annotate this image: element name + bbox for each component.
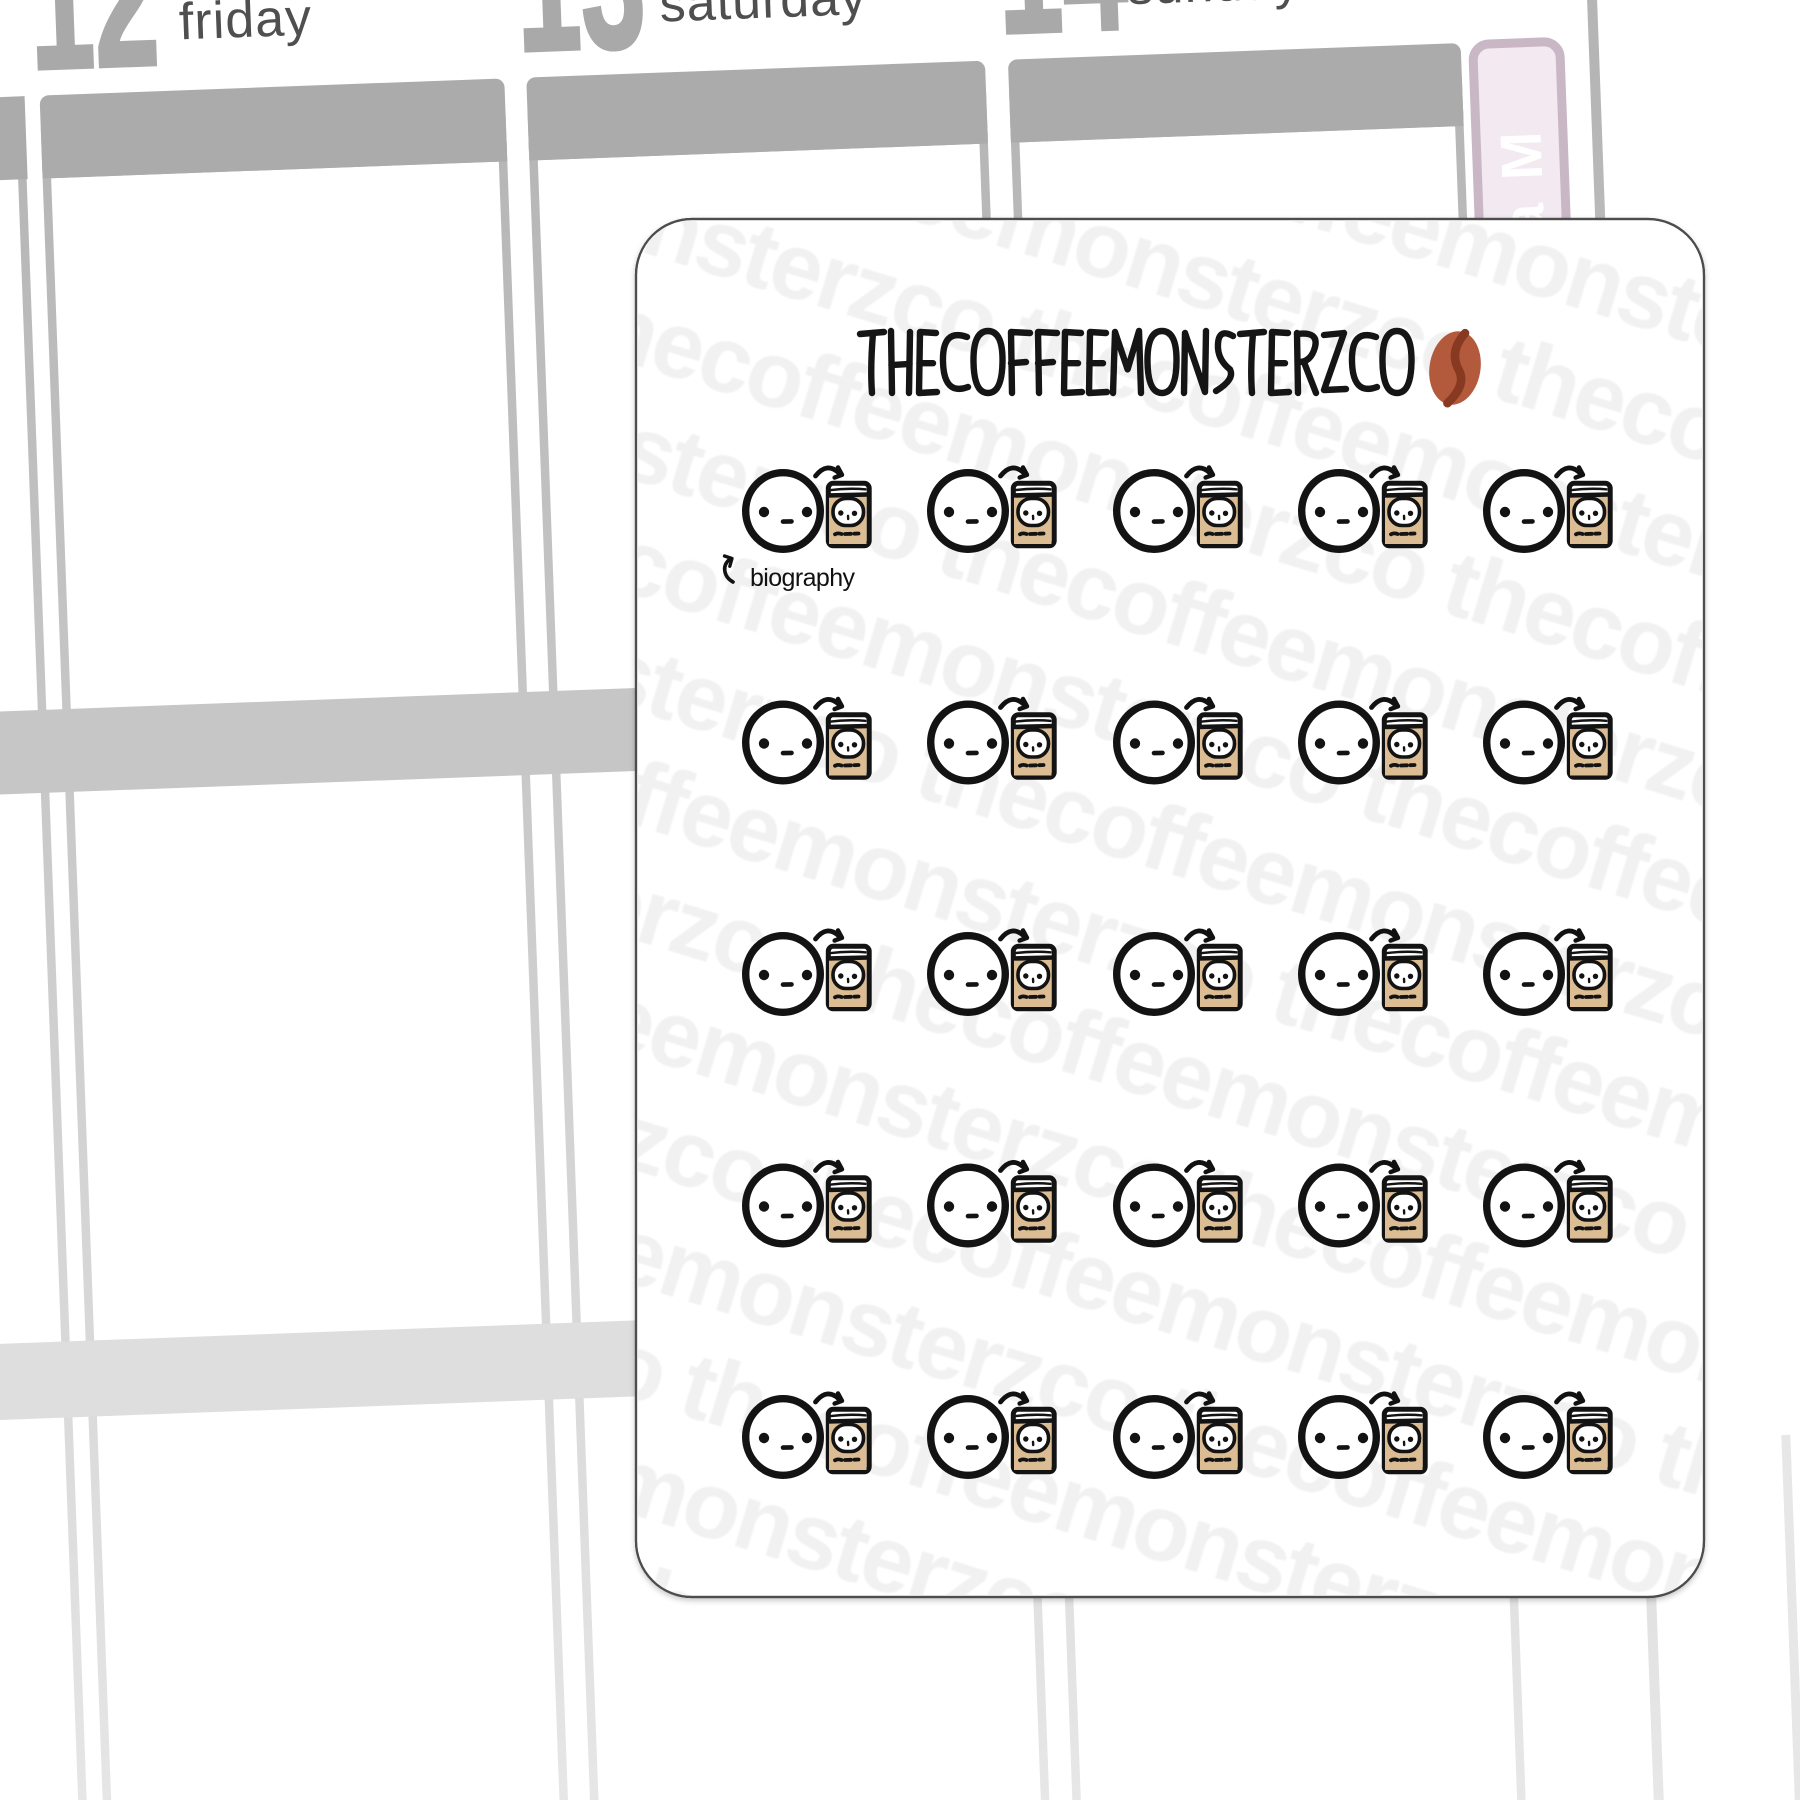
- svg-text:sunday: sunday: [1126, 0, 1302, 16]
- svg-text:M: M: [1488, 130, 1555, 181]
- svg-text:13: 13: [512, 0, 649, 94]
- svg-text:12: 12: [25, 0, 162, 112]
- svg-text:saturday: saturday: [659, 0, 868, 34]
- svg-text:14: 14: [993, 0, 1130, 76]
- svg-text:friday: friday: [178, 0, 313, 51]
- svg-text:biography: biography: [750, 564, 856, 592]
